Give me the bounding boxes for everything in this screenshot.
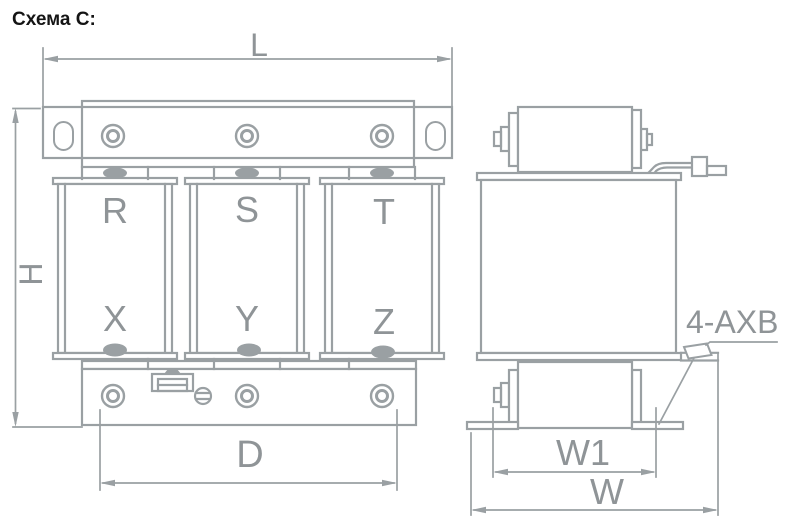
front-view: R X S Y T Z xyxy=(43,101,452,425)
side-top-clamp xyxy=(494,107,652,172)
coil-1-top-terminal xyxy=(103,168,127,179)
top-terminal-nut-2 xyxy=(236,125,258,147)
arrowhead xyxy=(382,480,397,486)
coil-terminal-label-z: Z xyxy=(373,301,395,342)
arrowhead xyxy=(471,507,486,513)
coil-3-bottom-terminal xyxy=(371,346,395,359)
coil-2-bottom-terminal xyxy=(237,344,261,357)
drawing-title: Схема C: xyxy=(12,9,96,30)
drawing-canvas: Схема C: R X xyxy=(0,0,800,525)
arrowhead xyxy=(493,469,508,475)
arrowhead xyxy=(641,469,656,475)
dim-label-w1: W1 xyxy=(556,432,610,473)
clamp-bolt-icon xyxy=(501,383,509,407)
clamp-body xyxy=(518,107,632,172)
coil-2-top-terminal xyxy=(235,168,259,179)
arrowhead xyxy=(43,56,58,62)
bottom-terminal-nut-3 xyxy=(371,385,393,407)
clamp-bolt-icon xyxy=(647,134,652,145)
slot-hole-icon xyxy=(684,344,712,359)
arrowhead xyxy=(100,480,115,486)
side-bottom-clamp xyxy=(467,362,683,429)
coil-terminal-label-t: T xyxy=(373,191,395,232)
coil-terminal-label-s: S xyxy=(235,189,259,230)
bottom-terminal-nut-1 xyxy=(102,385,124,407)
coil-terminal-label-y: Y xyxy=(235,298,259,339)
side-coil-bottom-cap xyxy=(477,353,681,360)
dim-label-l: L xyxy=(250,27,268,63)
dimension-l: L xyxy=(43,27,452,106)
coil-2: S Y xyxy=(185,178,309,359)
coil-terminal-label-r: R xyxy=(102,190,128,231)
arrowhead xyxy=(437,56,452,62)
coil-3-top-terminal xyxy=(370,168,394,179)
bottom-clamp-lip xyxy=(82,361,416,369)
slot-hole-right xyxy=(426,122,445,150)
reactor-technical-drawing: Схема C: R X xyxy=(0,0,800,525)
coil-terminal-label-x: X xyxy=(103,298,127,339)
bottom-terminal-nut-2 xyxy=(236,385,258,407)
clamp-flange-left xyxy=(509,113,518,166)
clamp-bolt-icon xyxy=(501,127,509,151)
lug-blade xyxy=(707,166,726,175)
clamp-flange-right xyxy=(632,110,641,168)
dim-label-d: D xyxy=(236,434,263,476)
mounting-foot-right xyxy=(632,422,683,429)
arrowhead xyxy=(12,412,18,427)
side-coil-body xyxy=(481,180,676,353)
side-view xyxy=(467,107,726,429)
clamp-body xyxy=(518,362,632,428)
coil-1: R X xyxy=(53,178,177,359)
arrowhead xyxy=(703,507,718,513)
clamp-flange-left xyxy=(509,370,518,423)
top-terminal-nut-1 xyxy=(102,125,124,147)
cable-lug xyxy=(692,157,707,176)
slot-hole-left xyxy=(54,122,73,150)
dim-label-w: W xyxy=(590,471,624,512)
coil-1-bottom-terminal xyxy=(103,344,127,357)
top-terminal-nut-3 xyxy=(371,125,393,147)
dim-label-h: H xyxy=(13,262,49,285)
coil-3: T Z xyxy=(320,178,444,359)
clamp-flange-right xyxy=(632,370,641,423)
mounting-tab xyxy=(681,344,718,361)
arrowhead xyxy=(12,108,18,123)
holes-note-label: 4-AXB xyxy=(686,304,778,340)
